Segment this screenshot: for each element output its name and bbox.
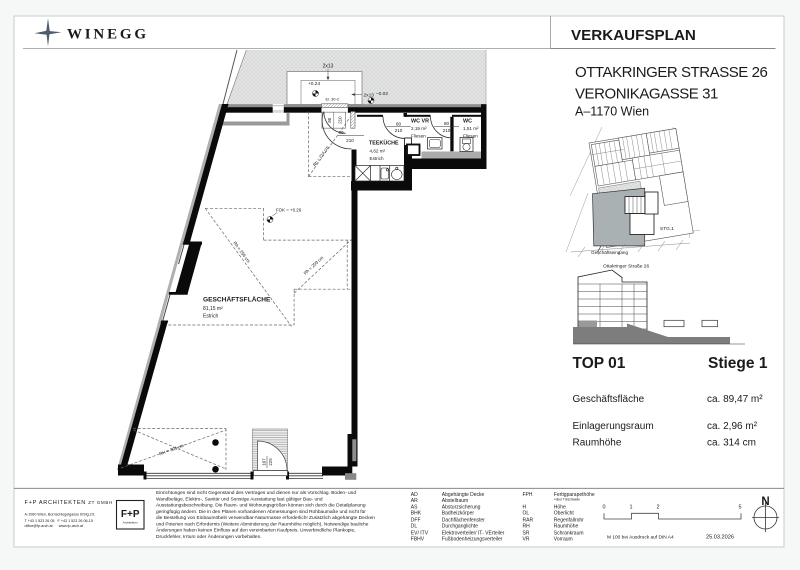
svg-text:Estrich: Estrich xyxy=(203,314,219,320)
svg-text:Geschäftseingang: Geschäftseingang xyxy=(591,250,628,255)
svg-text:229: 229 xyxy=(268,458,273,466)
svg-text:GESCHÄFTSFLÄCHE: GESCHÄFTSFLÄCHE xyxy=(203,296,271,304)
svg-text:–0.02: –0.02 xyxy=(376,91,388,97)
svg-text:Einrichtungen sind nicht Gegen: Einrichtungen sind nicht Gegenstand des … xyxy=(156,490,356,496)
svg-text:FBHV: FBHV xyxy=(411,537,425,543)
svg-text:DFF: DFF xyxy=(411,517,421,523)
svg-text:AS: AS xyxy=(411,504,418,510)
svg-text:ca. 89,47 m²: ca. 89,47 m² xyxy=(707,394,763,405)
svg-text:0: 0 xyxy=(603,505,606,511)
svg-text:Höhe: Höhe xyxy=(554,504,566,510)
svg-text:Raumhöhe: Raumhöhe xyxy=(573,438,622,449)
svg-text:VERKAUFSPLAN: VERKAUFSPLAN xyxy=(571,27,696,44)
svg-text:107: 107 xyxy=(262,458,267,466)
svg-text:und Poterien nach Erfordernis: und Poterien nach Erfordernis (Weitere A… xyxy=(156,521,369,527)
svg-text:FPH: FPH xyxy=(523,492,533,498)
svg-text:H: H xyxy=(523,504,527,510)
svg-text:Regenfallrohr: Regenfallrohr xyxy=(554,517,584,523)
svg-text:Schrankraum: Schrankraum xyxy=(554,531,584,537)
svg-text:Oberlicht: Oberlicht xyxy=(554,511,575,517)
svg-text:2: 2 xyxy=(657,505,660,511)
svg-text:80: 80 xyxy=(396,121,402,126)
svg-text:80: 80 xyxy=(444,121,450,126)
svg-text:4,62 m²: 4,62 m² xyxy=(370,149,386,154)
svg-text:Ottakringer Straße 26: Ottakringer Straße 26 xyxy=(603,264,649,270)
svg-text:5: 5 xyxy=(739,505,742,511)
svg-text:AR: AR xyxy=(411,498,418,504)
svg-text:Fliesen: Fliesen xyxy=(411,134,426,139)
svg-text:FOK = +0.26: FOK = +0.26 xyxy=(276,208,302,213)
svg-text:SR: SR xyxy=(523,531,530,537)
svg-text:RAR: RAR xyxy=(523,517,534,523)
svg-text:Fußbodenheizungsverteiler: Fußbodenheizungsverteiler xyxy=(442,537,503,543)
svg-text:ca. 2,96 m²: ca. 2,96 m² xyxy=(707,421,758,432)
svg-text:Wandbeläge, Elektro-, Sanitär: Wandbeläge, Elektro-, Sanitär und Sonsti… xyxy=(156,496,323,502)
svg-text:25.03.2026: 25.03.2026 xyxy=(706,535,734,541)
svg-text:Vorraum: Vorraum xyxy=(554,537,573,543)
svg-text:VR: VR xyxy=(523,537,530,543)
svg-text:Absturzsicherung: Absturzsicherung xyxy=(442,504,481,510)
svg-text:2x13: 2x13 xyxy=(323,64,334,70)
svg-text:WC: WC xyxy=(463,119,472,125)
svg-text:Einlagerungsraum: Einlagerungsraum xyxy=(573,421,654,432)
svg-text:F+P: F+P xyxy=(121,509,140,520)
svg-text:A–1170 Wien: A–1170 Wien xyxy=(575,105,649,119)
svg-text:Badheizkörper: Badheizkörper xyxy=(442,511,475,517)
svg-text:81,15 m²: 81,15 m² xyxy=(203,306,223,312)
svg-text:Abgehängte Decke: Abgehängte Decke xyxy=(442,492,485,498)
svg-text:WC VR: WC VR xyxy=(411,119,429,125)
svg-text:1: 1 xyxy=(630,505,633,511)
svg-text:M 100 bei Ausdruck auf DIN A4: M 100 bei Ausdruck auf DIN A4 xyxy=(607,535,674,541)
svg-text:210: 210 xyxy=(338,116,343,124)
svg-text:TEEKÜCHE: TEEKÜCHE xyxy=(369,140,399,147)
svg-text:1,51 m²: 1,51 m² xyxy=(463,126,479,131)
svg-text:Abstellraum: Abstellraum xyxy=(442,498,468,504)
svg-text:office@fp-arch.at www.fp-: office@fp-arch.at www.fp-arch.at xyxy=(25,524,84,528)
svg-text:Stiege 1: Stiege 1 xyxy=(708,355,768,372)
svg-text:+0.24: +0.24 xyxy=(308,81,320,87)
svg-text:BHK: BHK xyxy=(411,511,422,517)
svg-text:Ausstattungsbeschreibung. Die: Ausstattungsbeschreibung. Die Raum- und … xyxy=(156,503,366,509)
svg-text:80: 80 xyxy=(327,117,332,122)
svg-text:2x13: 2x13 xyxy=(364,93,375,99)
svg-text:210: 210 xyxy=(346,138,354,143)
svg-text:210: 210 xyxy=(395,128,403,133)
svg-text:210: 210 xyxy=(443,128,451,133)
svg-text:Estrich: Estrich xyxy=(370,156,384,161)
svg-text:Raumhöhe: Raumhöhe xyxy=(554,524,579,530)
svg-text:Änderungen haben keinen Einflu: Änderungen haben keinen Einfluss auf den… xyxy=(156,527,355,534)
svg-text:Druckfehler, Irrtum oder Änder: Druckfehler, Irrtum oder Änderungen vorb… xyxy=(156,533,262,540)
svg-text:El. 30-C: El. 30-C xyxy=(326,97,340,102)
svg-text:2,19 m²: 2,19 m² xyxy=(411,126,427,131)
svg-text:DL: DL xyxy=(411,524,418,530)
svg-text:TOP 01: TOP 01 xyxy=(573,355,626,372)
svg-text:+über Türschwelle: +über Türschwelle xyxy=(554,497,580,501)
svg-text:STG.1: STG.1 xyxy=(660,226,674,232)
svg-text:Dachflächenfenster: Dachflächenfenster xyxy=(442,517,485,523)
svg-text:WINEGG: WINEGG xyxy=(67,27,149,43)
svg-text:die Bestellung von Einbaumöbel: die Bestellung von Einbaumöbeln verwendb… xyxy=(156,515,375,521)
svg-text:T +43 1 523 26 05 F +43 1 52: T +43 1 523 26 05 F +43 1 523 26 06-15 xyxy=(25,519,93,523)
svg-text:AD: AD xyxy=(411,492,418,498)
svg-text:A-1060 Wien, Bornschlegelgasse: A-1060 Wien, Bornschlegelgasse 6/Stg.2/1 xyxy=(25,513,95,517)
svg-text:EV/ ITV: EV/ ITV xyxy=(411,531,429,537)
svg-text:OTTAKRINGER STRASSE 26: OTTAKRINGER STRASSE 26 xyxy=(575,64,767,81)
svg-text:Fliesen: Fliesen xyxy=(463,134,478,139)
svg-text:ca. 314 cm: ca. 314 cm xyxy=(707,438,756,449)
svg-text:Geschäftsfläche: Geschäftsfläche xyxy=(573,394,645,405)
svg-text:Elektroverteiler/ IT- VErteile: Elektroverteiler/ IT- VErteiler xyxy=(442,531,505,537)
svg-text:RH: RH xyxy=(523,524,531,530)
svg-text:OL: OL xyxy=(523,511,530,517)
svg-text:Durchganglichte: Durchganglichte xyxy=(442,524,478,530)
svg-text:Architekten: Architekten xyxy=(123,521,138,525)
svg-text:geringfügig ändern. Die in den: geringfügig ändern. Die in den Plänen vo… xyxy=(156,509,366,515)
svg-text:VERONIKAGASSE 31: VERONIKAGASSE 31 xyxy=(575,86,718,103)
